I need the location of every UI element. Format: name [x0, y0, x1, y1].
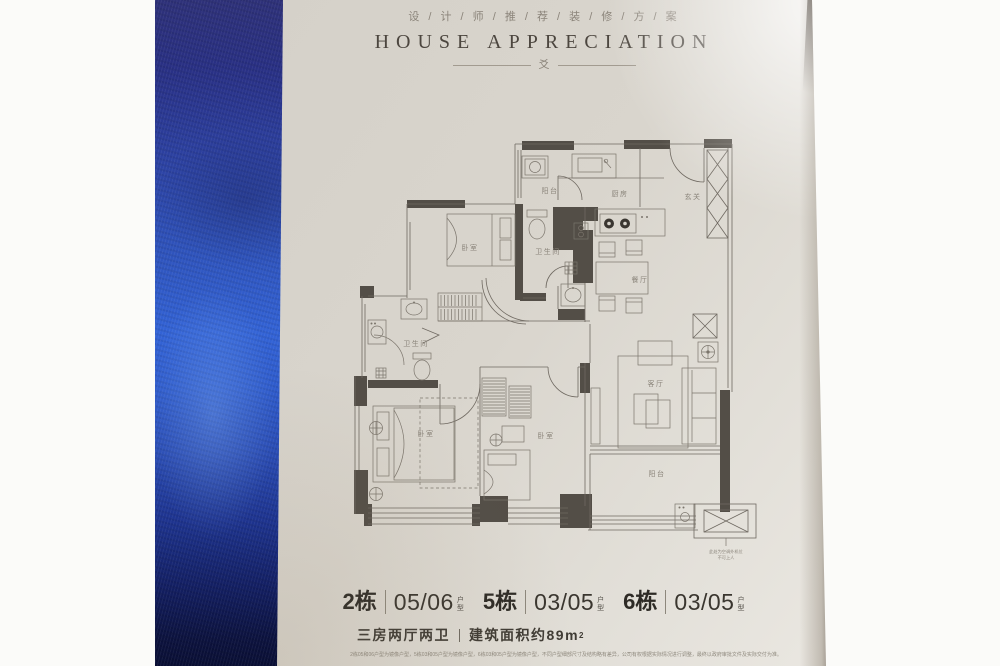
room-label-kitchen: 厨房	[612, 189, 629, 198]
header-title-cn: 设 / 计 / 师 / 推 / 荐 / 装 / 修 / 方 / 案	[276, 8, 812, 24]
ac-note-line2: 不可上人	[718, 554, 736, 561]
building-label: 6栋	[623, 588, 657, 616]
room-label-balcony-top: 阳台	[542, 186, 559, 195]
floor-plan-svg: 阳台 厨房 玄关 卧室 卫生间 餐厅 卫生间 客厅 卧室 卧室 阳台 此处为空调…	[352, 138, 762, 585]
room-label-bath-main: 卫生间	[403, 339, 429, 348]
washbasin-icon-inner	[561, 284, 585, 306]
summary-layout: 三房两厅两卫	[357, 625, 450, 645]
divider	[665, 590, 666, 614]
washing-machine-icon	[522, 156, 548, 178]
units-row: 2栋 05/06 户型 5栋 03/05 户型 6栋 03/05 户型	[276, 588, 812, 616]
building-label: 2栋	[343, 588, 377, 616]
washer-icon-main-bath	[368, 320, 386, 344]
divider	[385, 590, 386, 614]
wardrobe-icon-2	[509, 386, 531, 418]
room-label-bedroom-top: 卧室	[462, 243, 479, 252]
structural-column-icon	[693, 314, 717, 338]
blue-book-spine	[155, 0, 284, 666]
page-header: 设 / 计 / 师 / 推 / 荐 / 装 / 修 / 方 / 案 HOUSE …	[276, 8, 812, 71]
ac-outdoor-unit-icon	[694, 504, 756, 546]
room-label-dining: 餐厅	[632, 275, 649, 284]
unit-group-1: 2栋 05/06 户型	[343, 588, 465, 616]
building-label: 5栋	[483, 588, 517, 616]
bed-icon-second	[484, 450, 530, 500]
entry-closet-icon	[707, 150, 728, 238]
summary-row: 三房两厅两卫 建筑面积约89m2	[357, 625, 583, 645]
room-label-living: 客厅	[648, 379, 665, 388]
unit-suffix: 户型	[457, 597, 465, 613]
brochure-page: 设 / 计 / 师 / 推 / 荐 / 装 / 修 / 方 / 案 HOUSE …	[276, 0, 827, 666]
unit-group-3: 6栋 03/05 户型	[623, 588, 745, 616]
disclaimer-text: 2栋05和06户型为镜像户型，5栋03和05户型为镜像户型，6栋03和05户型为…	[326, 651, 806, 658]
photo-backdrop: 设 / 计 / 师 / 推 / 荐 / 装 / 修 / 方 / 案 HOUSE …	[0, 0, 1000, 666]
bed-icon-top-bedroom	[447, 214, 515, 266]
unit-number: 03/05	[674, 588, 734, 616]
shower-door-arc	[374, 335, 404, 378]
room-label-bedroom-second: 卧室	[538, 431, 555, 440]
bed-icon-master	[373, 406, 455, 482]
sofa-icon	[682, 368, 716, 444]
unit-suffix: 户型	[737, 597, 745, 613]
unit-number: 05/06	[394, 588, 454, 616]
ceiling-fan-icon	[698, 342, 718, 362]
ac-note-line1: 此处为空调外机位	[709, 548, 743, 555]
divider	[459, 629, 460, 642]
spine-fabric-texture	[155, 0, 284, 666]
plan-walls	[354, 139, 732, 528]
summary-area: 建筑面积约89m	[469, 625, 579, 645]
room-label-balcony-bottom: 阳台	[649, 469, 666, 478]
toilet-icon-main	[413, 353, 431, 380]
desk-icon-second	[502, 426, 524, 442]
toilet-icon-inner	[527, 210, 547, 239]
tv-cabinet-icon	[591, 388, 600, 444]
hallway-cabinet-icon	[438, 293, 482, 321]
ornament-line-right	[558, 65, 636, 66]
divider	[525, 590, 526, 614]
header-title-en: HOUSE APPRECIATION	[276, 31, 812, 54]
summary-area-sup: 2	[579, 631, 583, 640]
unit-group-2: 5栋 03/05 户型	[483, 588, 605, 616]
header-ornament: 爻	[276, 60, 812, 71]
rug-living	[618, 356, 688, 448]
stove-icon	[595, 209, 665, 236]
unit-number: 03/05	[534, 588, 594, 616]
room-label-bath-inner: 卫生间	[535, 247, 561, 256]
ornament-line-left	[453, 65, 531, 66]
ornament-flourish-icon: 爻	[539, 60, 550, 71]
room-label-entry: 玄关	[685, 192, 702, 201]
ceiling-lamp-icon	[370, 422, 503, 501]
washbasin-icon-main	[401, 299, 427, 319]
kitchen-sink-icon	[558, 154, 664, 178]
room-label-bedroom-master: 卧室	[418, 429, 435, 438]
unit-suffix: 户型	[597, 597, 605, 613]
wardrobe-icon-1	[482, 378, 506, 416]
